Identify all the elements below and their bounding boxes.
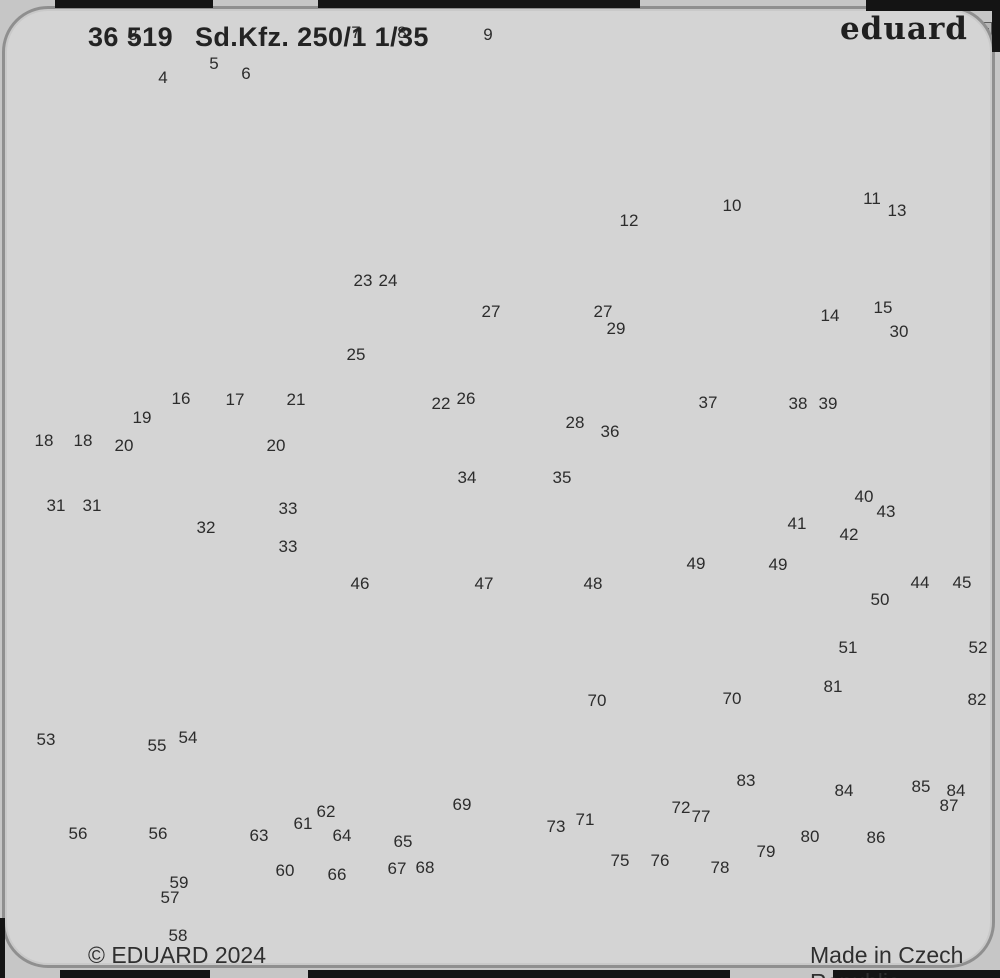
part-number-label: 38: [789, 394, 808, 414]
part-number-label: 80: [801, 827, 820, 847]
edge-black-bottom-mid: [308, 970, 730, 978]
part-number-label: 31: [83, 496, 102, 516]
part-number-label: 75: [611, 851, 630, 871]
part-number-label: 46: [351, 574, 370, 594]
part-number-label: 12: [620, 211, 639, 231]
part-number-label: 22: [432, 394, 451, 414]
part-number-label: 18: [35, 431, 54, 451]
part-number-label: 41: [788, 514, 807, 534]
part-number-label: 54: [179, 728, 198, 748]
part-number-label: 72: [672, 798, 691, 818]
copyright-text: © EDUARD 2024: [88, 942, 266, 969]
part-number-label: 68: [416, 858, 435, 878]
part-number-label: 60: [276, 861, 295, 881]
part-number-label: 79: [757, 842, 776, 862]
part-number-label: 86: [867, 828, 886, 848]
edge-black-top-right: [866, 0, 1000, 11]
page-title: 36 519Sd.Kfz. 250/1 1/35: [88, 22, 429, 53]
part-number-label: 78: [711, 858, 730, 878]
edge-black-left: [0, 918, 5, 978]
part-number-label: 67: [388, 859, 407, 879]
part-number-label: 82: [968, 690, 987, 710]
part-number-label: 55: [148, 736, 167, 756]
part-number-label: 45: [953, 573, 972, 593]
part-number-label: 30: [890, 322, 909, 342]
part-number-label: 31: [47, 496, 66, 516]
part-number-label: 34: [458, 468, 477, 488]
part-number-label: 35: [553, 468, 572, 488]
part-number-label: 61: [294, 814, 313, 834]
part-number-label: 17: [226, 390, 245, 410]
part-number-label: 50: [871, 590, 890, 610]
part-number-label: 26: [457, 389, 476, 409]
product-code: 36 519: [88, 22, 173, 52]
part-number-label: 52: [969, 638, 988, 658]
part-number-label: 40: [855, 487, 874, 507]
product-scale: 1/35: [375, 22, 429, 52]
part-number-label: 11: [863, 189, 881, 209]
part-number-label: 49: [769, 555, 788, 575]
part-number-label: 70: [588, 691, 607, 711]
photoetch-sheet-image: 36 519Sd.Kfz. 250/1 1/35 eduard © EDUARD…: [0, 0, 1000, 978]
part-number-label: 19: [133, 408, 152, 428]
part-number-label: 15: [874, 298, 893, 318]
part-number-label: 66: [328, 865, 347, 885]
part-number-label: 85: [912, 777, 931, 797]
part-number-label: 56: [149, 824, 168, 844]
part-number-label: 37: [699, 393, 718, 413]
part-number-label: 20: [115, 436, 134, 456]
part-number-label: 6: [241, 64, 250, 84]
part-number-label: 20: [267, 436, 286, 456]
part-number-label: 49: [687, 554, 706, 574]
part-number-label: 48: [584, 574, 603, 594]
part-number-label: 51: [839, 638, 858, 658]
made-in-text: Made in Czech Republic: [810, 942, 1000, 978]
part-number-label: 25: [347, 345, 366, 365]
part-number-label: 32: [197, 518, 216, 538]
part-number-label: 63: [250, 826, 269, 846]
part-number-label: 10: [723, 196, 742, 216]
part-number-label: 56: [69, 824, 88, 844]
part-number-label: 9: [483, 25, 492, 45]
part-number-label: 47: [475, 574, 494, 594]
product-name: Sd.Kfz. 250/1: [195, 22, 367, 52]
part-number-label: 33: [279, 537, 298, 557]
part-number-label: 43: [877, 502, 896, 522]
part-number-label: 71: [576, 810, 595, 830]
part-number-label: 84: [835, 781, 854, 801]
part-number-label: 24: [379, 271, 398, 291]
part-number-label: 14: [821, 306, 840, 326]
part-number-label: 44: [911, 573, 930, 593]
part-number-label: 23: [354, 271, 373, 291]
part-number-label: 70: [723, 689, 742, 709]
part-number-label: 76: [651, 851, 670, 871]
part-number-label: 53: [37, 730, 56, 750]
part-number-label: 73: [547, 817, 566, 837]
part-number-label: 42: [840, 525, 859, 545]
part-number-label: 21: [287, 390, 306, 410]
part-number-label: 64: [333, 826, 352, 846]
edge-black-bottom-left: [60, 970, 210, 978]
part-number-label: 16: [172, 389, 191, 409]
part-number-label: 4: [158, 68, 167, 88]
part-number-label: 65: [394, 832, 413, 852]
part-number-label: 28: [566, 413, 585, 433]
part-number-label: 69: [453, 795, 472, 815]
part-number-label: 62: [317, 802, 336, 822]
edge-black-top-left: [55, 0, 213, 8]
part-number-label: 87: [940, 796, 959, 816]
part-number-label: 33: [279, 499, 298, 519]
part-number-label: 29: [607, 319, 626, 339]
part-number-label: 77: [692, 807, 711, 827]
part-number-label: 27: [482, 302, 501, 322]
edge-black-top-mid: [318, 0, 640, 8]
part-number-label: 83: [737, 771, 756, 791]
part-number-label: 39: [819, 394, 838, 414]
part-number-label: 59: [170, 873, 189, 893]
part-number-label: 81: [824, 677, 843, 697]
part-number-label: 5: [209, 54, 218, 74]
part-number-label: 13: [888, 201, 907, 221]
edge-black-right: [992, 8, 1000, 52]
part-number-label: 36: [601, 422, 620, 442]
brand-logo: eduard: [840, 11, 968, 47]
part-number-label: 18: [74, 431, 93, 451]
